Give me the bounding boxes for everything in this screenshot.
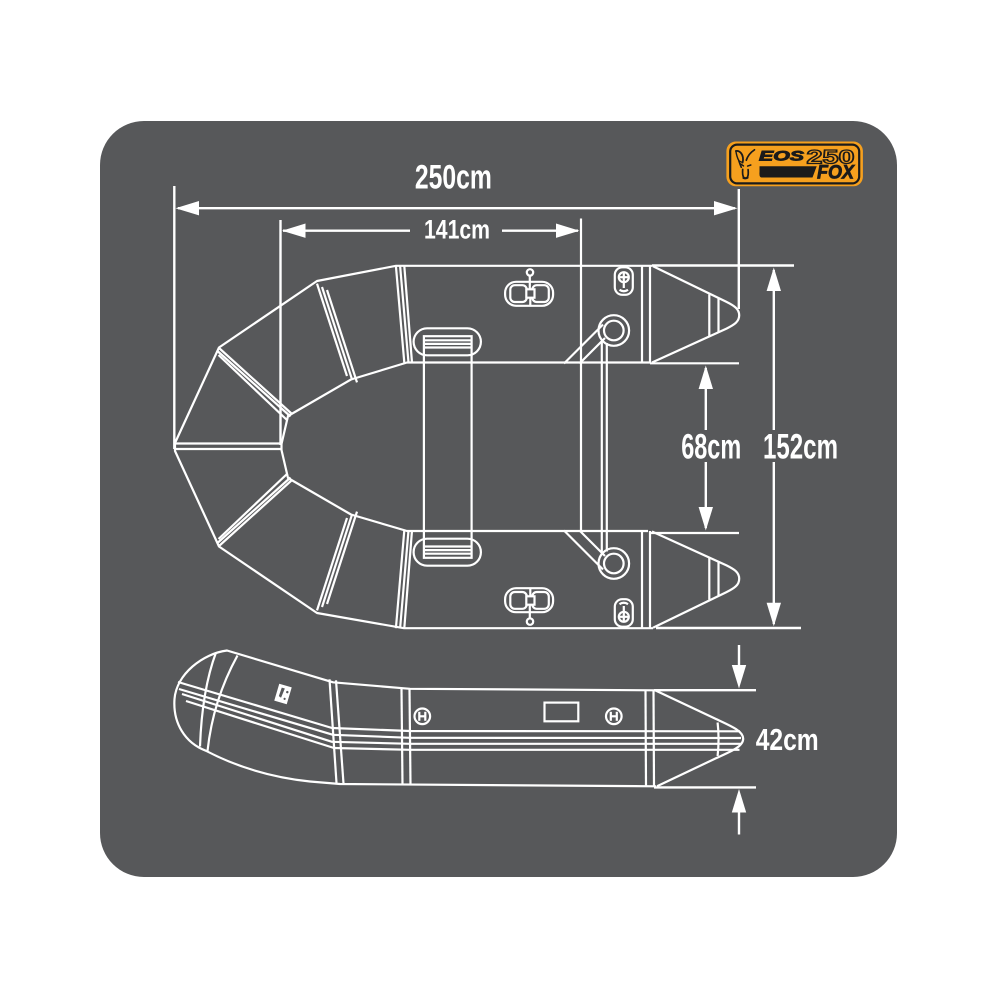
svg-text:141cm: 141cm [424,215,490,245]
svg-text:152cm: 152cm [763,428,838,467]
svg-text:250cm: 250cm [415,159,492,197]
svg-text:EOS: EOS [759,147,805,163]
svg-text:68cm: 68cm [681,428,741,467]
svg-text:42cm: 42cm [756,722,819,757]
svg-text:FOX: FOX [817,162,855,183]
